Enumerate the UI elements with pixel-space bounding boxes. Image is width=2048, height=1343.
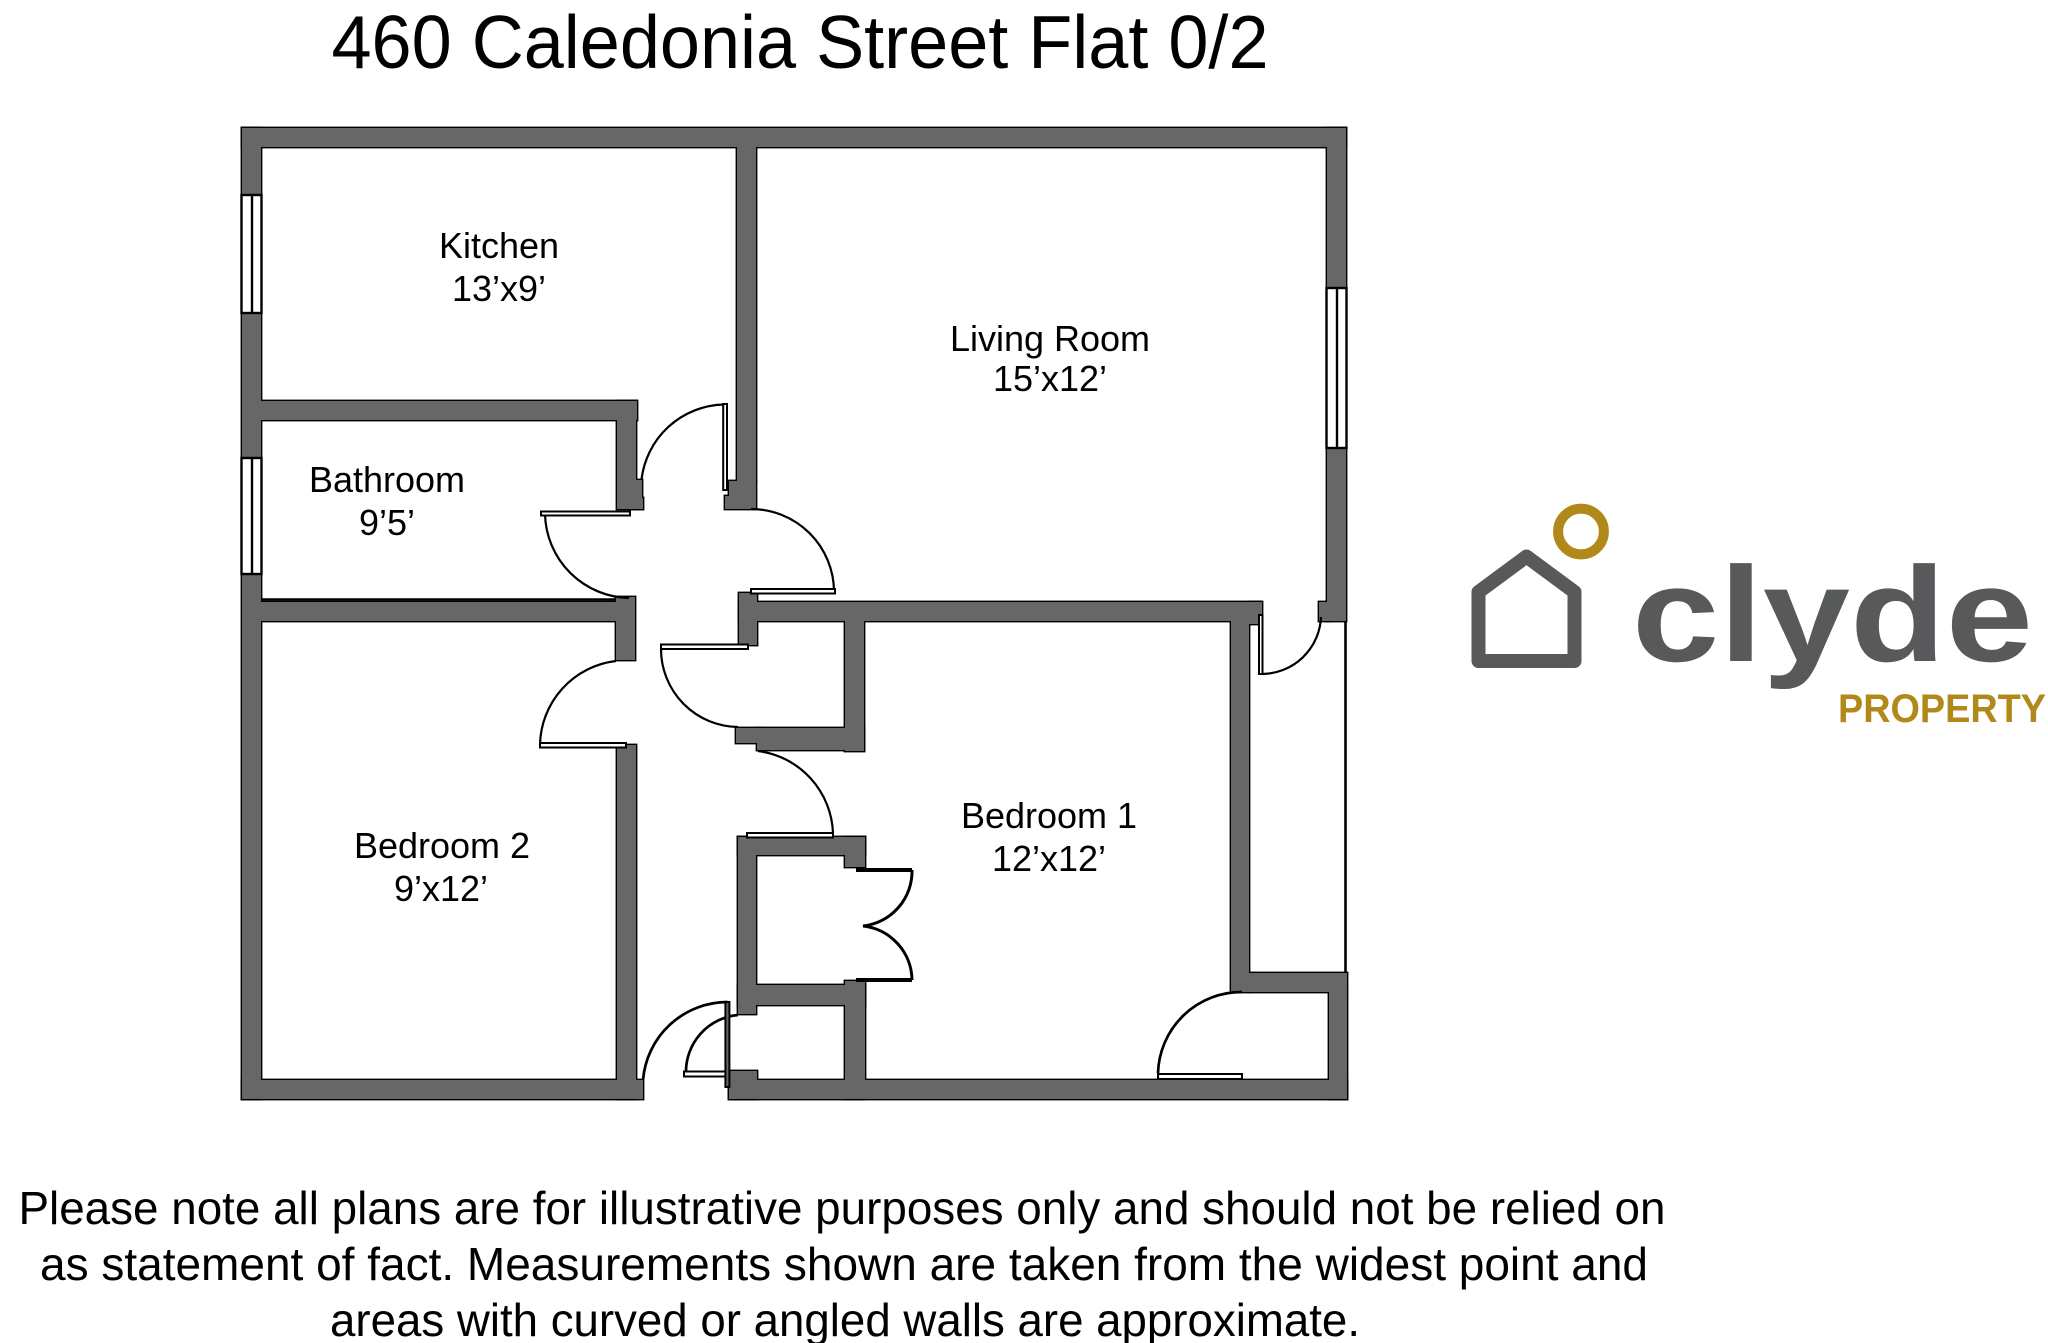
svg-text:Bedroom 2: Bedroom 2 xyxy=(354,825,530,866)
svg-text:clyde: clyde xyxy=(1632,539,2033,690)
svg-text:PROPERTY: PROPERTY xyxy=(1838,687,2046,731)
svg-text:9’x12’: 9’x12’ xyxy=(394,868,488,909)
svg-text:areas with curved or angled wa: areas with curved or angled walls are ap… xyxy=(330,1294,1360,1343)
svg-text:460 Caledonia Street Flat 0/2: 460 Caledonia Street Flat 0/2 xyxy=(332,0,1269,84)
svg-text:Kitchen: Kitchen xyxy=(439,225,559,266)
svg-text:Please note all plans are for: Please note all plans are for illustrati… xyxy=(19,1182,1666,1234)
svg-text:Living Room: Living Room xyxy=(950,318,1150,359)
svg-text:13’x9’: 13’x9’ xyxy=(452,268,546,309)
svg-text:Bathroom: Bathroom xyxy=(309,459,465,500)
svg-text:15’x12’: 15’x12’ xyxy=(993,358,1107,399)
svg-text:12’x12’: 12’x12’ xyxy=(992,838,1106,879)
svg-text:Bedroom 1: Bedroom 1 xyxy=(961,795,1137,836)
svg-text:as statement of fact. Measurem: as statement of fact. Measurements shown… xyxy=(40,1238,1648,1290)
svg-text:9’5’: 9’5’ xyxy=(359,502,415,543)
